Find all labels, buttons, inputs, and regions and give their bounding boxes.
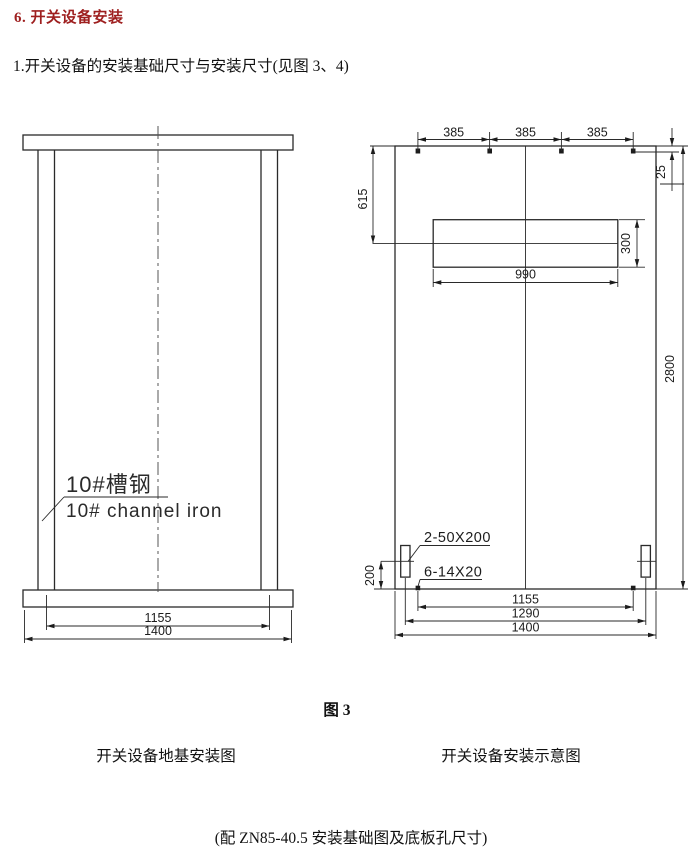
footnote: (配 ZN85-40.5 安装基础图及底板孔尺寸): [151, 826, 551, 848]
holes-spec-callout: 6-14X20: [418, 565, 482, 587]
dim-opening-height: 300: [619, 220, 645, 268]
intro-text: 1.开关设备的安装基础尺寸与安装尺寸(见图 3、4): [13, 54, 349, 76]
holes-spec-label: 6-14X20: [424, 565, 482, 581]
dim-edge-to-bolt: 25: [635, 128, 684, 191]
channel-label-en: 10# channel iron: [66, 501, 223, 522]
dim-2800: 2800: [663, 355, 677, 383]
dim-overall-height: 2800: [663, 146, 683, 589]
dim-385-3: 385: [587, 126, 608, 140]
figure-label: 图 3: [287, 698, 387, 720]
dim-slot-to-edge: 200: [363, 561, 381, 589]
dim-200: 200: [363, 565, 377, 586]
foundation-figure: 10#槽钢 10# channel iron 1155 1400: [23, 126, 293, 643]
manual-page: { "document": { "section_title": "6. 开关设…: [0, 0, 700, 863]
section-title: 6. 开关设备安装: [14, 6, 124, 27]
caption-right: 开关设备安装示意图: [411, 744, 611, 766]
channel-iron-callout: 10#槽钢 10# channel iron: [42, 472, 223, 522]
dim-300: 300: [619, 233, 633, 254]
dim-1400: 1400: [512, 621, 540, 635]
foundation-bottom-beam: [23, 590, 293, 607]
channel-label-cn: 10#槽钢: [66, 472, 152, 497]
installation-figure: 385 385 385 615 25 300: [356, 126, 688, 640]
dim-1290: 1290: [512, 607, 540, 621]
figure-3-drawings: 10#槽钢 10# channel iron 1155 1400: [0, 110, 700, 670]
dim-outer-span: 1400: [144, 624, 172, 638]
dim-385-1: 385: [443, 126, 464, 140]
dim-inner-span: 1155: [145, 611, 172, 625]
dim-1155: 1155: [512, 593, 539, 607]
slot-spec-label: 2-50X200: [424, 530, 491, 546]
dim-385-2: 385: [515, 126, 536, 140]
slot-spec-callout: 2-50X200: [408, 530, 491, 562]
caption-left: 开关设备地基安装图: [66, 744, 266, 766]
dim-990: 990: [515, 268, 536, 282]
dim-top-to-opening: 615: [356, 146, 373, 243]
dim-25: 25: [654, 165, 668, 179]
dim-615: 615: [356, 189, 370, 210]
fixing-slots: [381, 546, 656, 578]
foundation-right-channel: [261, 150, 278, 590]
foundation-left-channel: [38, 150, 55, 590]
